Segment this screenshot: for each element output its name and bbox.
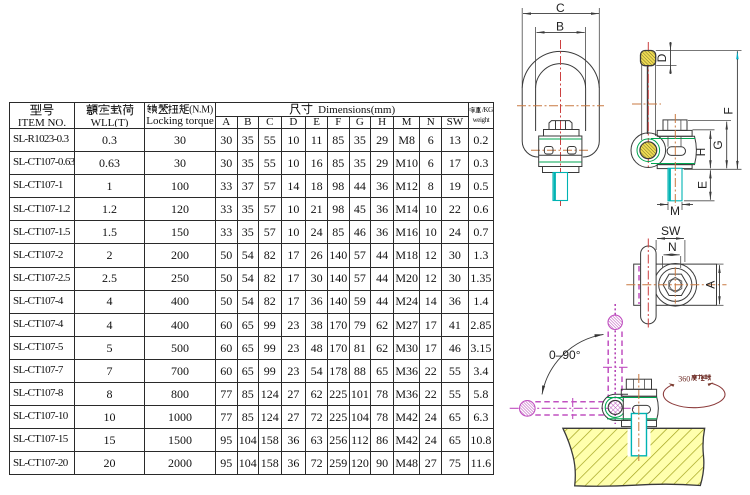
svg-text:A: A <box>704 281 718 289</box>
svg-text:B: B <box>556 20 564 34</box>
svg-text:H: H <box>694 148 708 157</box>
svg-text:D: D <box>655 53 669 62</box>
svg-text:SW: SW <box>661 224 681 238</box>
svg-text:G: G <box>711 140 725 149</box>
svg-text:0–90°: 0–90° <box>549 348 581 362</box>
svg-text:M: M <box>670 204 680 218</box>
svg-text:360: 360 <box>678 374 690 383</box>
svg-text:N: N <box>668 240 677 254</box>
svg-text:F: F <box>722 107 736 114</box>
svg-text:E: E <box>696 181 710 189</box>
svg-text:C: C <box>556 1 565 15</box>
